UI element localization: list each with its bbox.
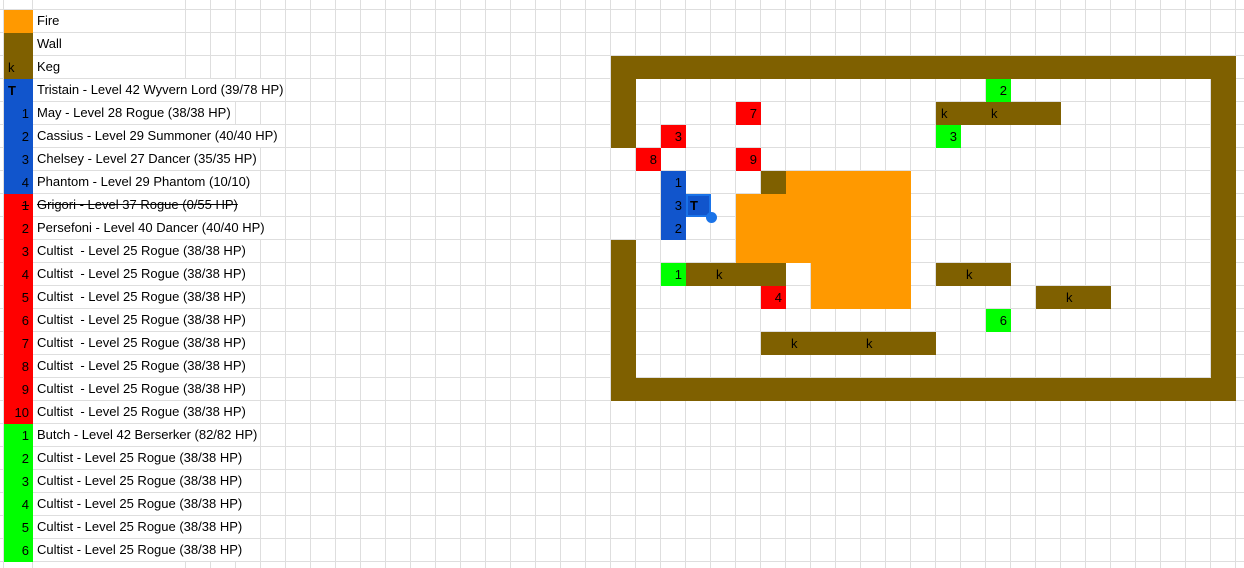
map-unit-green-3[interactable]: 3 [936, 125, 961, 148]
map-wall-cells[interactable] [1211, 79, 1236, 102]
map-unit-blue-T[interactable]: T [686, 194, 711, 217]
map-wall-cells[interactable] [1211, 240, 1236, 263]
map-wall-cells[interactable] [1211, 217, 1236, 240]
legend-label-cell[interactable]: Cultist - Level 25 Rogue (38/38 HP) [33, 240, 260, 262]
map-wall-cells[interactable] [611, 102, 636, 125]
map-wall-cells[interactable] [611, 332, 636, 355]
legend-label-cell[interactable]: Cultist - Level 25 Rogue (38/38 HP) [33, 309, 260, 331]
map-wall-cells[interactable] [1211, 194, 1236, 217]
legend-label-cell[interactable]: Butch - Level 42 Berserker (82/82 HP) [33, 424, 260, 446]
map-fire-cells[interactable] [736, 194, 911, 217]
map-wall-cells[interactable] [761, 171, 786, 194]
map-wall-cells[interactable] [1211, 286, 1236, 309]
map-wall-cells[interactable] [611, 309, 636, 332]
legend-swatch-cell[interactable]: 10 [4, 401, 33, 424]
legend-swatch-cell[interactable] [4, 33, 33, 56]
legend-label-cell[interactable]: Persefoni - Level 40 Dancer (40/40 HP) [33, 217, 285, 239]
map-unit-blue-3[interactable]: 3 [661, 194, 686, 217]
legend-label-cell[interactable]: Cultist - Level 25 Rogue (38/38 HP) [33, 447, 260, 469]
legend-swatch-cell[interactable]: 1 [4, 102, 33, 125]
legend-label-cell[interactable]: Chelsey - Level 27 Dancer (35/35 HP) [33, 148, 260, 170]
legend-label-cell[interactable]: Wall [33, 33, 185, 55]
map-keg-cell[interactable]: k [961, 263, 986, 286]
map-unit-red-3[interactable]: 3 [661, 125, 686, 148]
map-fire-cells[interactable] [786, 171, 911, 194]
map-keg-cell[interactable]: k [986, 102, 1011, 125]
legend-label-cell[interactable]: Cultist - Level 25 Rogue (38/38 HP) [33, 378, 260, 400]
legend-label-cell[interactable]: Cultist - Level 25 Rogue (38/38 HP) [33, 355, 260, 377]
legend-label-cell[interactable]: May - Level 28 Rogue (38/38 HP) [33, 102, 235, 124]
map-wall-cells[interactable] [1211, 171, 1236, 194]
map-unit-red-4[interactable]: 4 [761, 286, 786, 309]
map-wall-cells[interactable] [1211, 148, 1236, 171]
legend-swatch-cell[interactable]: 4 [4, 493, 33, 516]
map-keg-cell[interactable]: k [861, 332, 886, 355]
map-keg-cell[interactable]: k [786, 332, 811, 355]
legend-label-cell[interactable]: Keg [33, 56, 185, 78]
map-unit-green-6[interactable]: 6 [986, 309, 1011, 332]
legend-swatch-cell[interactable]: k [4, 56, 33, 79]
legend-swatch-cell[interactable]: 5 [4, 516, 33, 539]
map-unit-green-1[interactable]: 1 [661, 263, 686, 286]
legend-swatch-cell[interactable]: 3 [4, 470, 33, 493]
legend-label-cell[interactable]: Cultist - Level 25 Rogue (38/38 HP) [33, 516, 260, 538]
map-wall-cells[interactable] [1211, 263, 1236, 286]
legend-label-cell[interactable]: Phantom - Level 29 Phantom (10/10) [33, 171, 260, 193]
selection-handle[interactable] [706, 212, 717, 223]
map-unit-blue-2[interactable]: 2 [661, 217, 686, 240]
map-fire-cells[interactable] [811, 263, 911, 286]
map-wall-cells[interactable] [611, 79, 636, 102]
map-wall-cells[interactable] [611, 378, 1236, 401]
map-keg-cell[interactable]: k [1061, 286, 1086, 309]
legend-label-cell[interactable]: Cultist - Level 25 Rogue (38/38 HP) [33, 263, 260, 285]
legend-label-cell[interactable]: Fire [33, 10, 185, 32]
map-wall-cells[interactable] [1211, 125, 1236, 148]
legend-swatch-cell[interactable]: 1 [4, 424, 33, 447]
map-wall-cells[interactable] [611, 240, 636, 263]
map-wall-cells[interactable] [1211, 332, 1236, 355]
legend-label-cell[interactable]: Cultist - Level 25 Rogue (38/38 HP) [33, 470, 260, 492]
map-wall-cells[interactable] [611, 263, 636, 286]
legend-label-cell[interactable]: Grigori - Level 37 Rogue (0/55 HP) [33, 194, 260, 216]
legend-label-cell[interactable]: Cultist - Level 25 Rogue (38/38 HP) [33, 493, 260, 515]
legend-label-cell[interactable]: Cultist - Level 25 Rogue (38/38 HP) [33, 332, 260, 354]
legend-swatch-cell[interactable]: 4 [4, 171, 33, 194]
map-wall-cells[interactable] [1211, 355, 1236, 378]
legend-swatch-cell[interactable]: 4 [4, 263, 33, 286]
map-wall-cells[interactable] [1211, 102, 1236, 125]
legend-swatch-cell[interactable]: 2 [4, 447, 33, 470]
legend-label-cell[interactable]: Cassius - Level 29 Summoner (40/40 HP) [33, 125, 285, 147]
map-wall-cells[interactable] [1211, 309, 1236, 332]
legend-swatch-cell[interactable]: 9 [4, 378, 33, 401]
map-wall-cells[interactable] [686, 263, 786, 286]
map-wall-cells[interactable] [611, 286, 636, 309]
map-unit-red-7[interactable]: 7 [736, 102, 761, 125]
map-unit-blue-1[interactable]: 1 [661, 171, 686, 194]
legend-swatch-cell[interactable]: 3 [4, 148, 33, 171]
map-unit-red-9[interactable]: 9 [736, 148, 761, 171]
map-keg-cell[interactable]: k [711, 263, 736, 286]
map-fire-cells[interactable] [736, 217, 911, 240]
map-wall-cells[interactable] [611, 355, 636, 378]
map-wall-cells[interactable] [611, 56, 1236, 79]
legend-swatch-cell[interactable]: 3 [4, 240, 33, 263]
legend-swatch-cell[interactable]: 8 [4, 355, 33, 378]
map-fire-cells[interactable] [811, 286, 911, 309]
legend-swatch-cell[interactable]: 5 [4, 286, 33, 309]
legend-swatch-cell[interactable]: 1 [4, 194, 33, 217]
map-unit-green-2[interactable]: 2 [986, 79, 1011, 102]
legend-label-cell[interactable]: Cultist - Level 25 Rogue (38/38 HP) [33, 401, 260, 423]
legend-swatch-cell[interactable]: 2 [4, 125, 33, 148]
map-wall-cells[interactable] [611, 125, 636, 148]
legend-swatch-cell[interactable]: 6 [4, 539, 33, 562]
legend-label-cell[interactable]: Cultist - Level 25 Rogue (38/38 HP) [33, 539, 260, 561]
legend-swatch-cell[interactable]: 7 [4, 332, 33, 355]
legend-label-cell[interactable]: Tristain - Level 42 Wyvern Lord (39/78 H… [33, 79, 285, 101]
legend-swatch-cell[interactable]: T [4, 79, 33, 102]
map-fire-cells[interactable] [736, 240, 911, 263]
legend-swatch-cell[interactable]: 2 [4, 217, 33, 240]
map-keg-cell[interactable]: k [936, 102, 961, 125]
legend-swatch-cell[interactable] [4, 10, 33, 33]
legend-swatch-cell[interactable]: 6 [4, 309, 33, 332]
map-unit-red-8[interactable]: 8 [636, 148, 661, 171]
legend-label-cell[interactable]: Cultist - Level 25 Rogue (38/38 HP) [33, 286, 260, 308]
